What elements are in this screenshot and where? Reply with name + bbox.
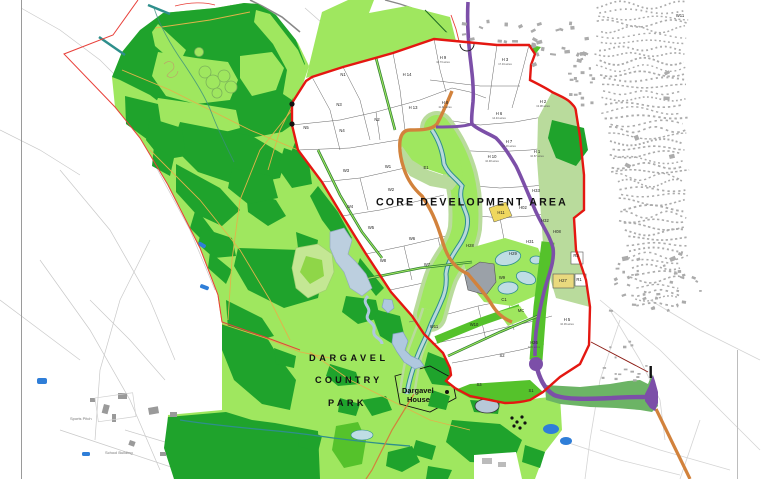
svg-text:14.43 acres: 14.43 acres xyxy=(492,116,506,120)
svg-text:10.87 acres: 10.87 acres xyxy=(530,154,544,158)
svg-text:S3: S3 xyxy=(476,382,482,387)
svg-text:W1: W1 xyxy=(385,164,392,169)
svg-text:PARK: PARK xyxy=(328,398,367,408)
svg-text:11.41 acres: 11.41 acres xyxy=(438,105,452,109)
svg-text:N5: N5 xyxy=(303,125,309,130)
svg-text:H27: H27 xyxy=(559,278,567,283)
svg-text:H 2: H 2 xyxy=(540,99,547,104)
svg-text:H31: H31 xyxy=(526,239,534,244)
svg-text:W2: W2 xyxy=(388,187,395,192)
svg-text:N3: N3 xyxy=(336,102,342,107)
svg-text:10.39 acres: 10.39 acres xyxy=(560,322,574,326)
svg-text:H 7: H 7 xyxy=(506,139,513,144)
svg-text:10.73 acres: 10.73 acres xyxy=(436,60,450,64)
svg-text:S2: S2 xyxy=(499,353,505,358)
svg-text:W8: W8 xyxy=(380,258,387,263)
svg-text:N1: N1 xyxy=(340,72,346,77)
svg-text:H 14: H 14 xyxy=(403,72,413,77)
svg-text:CORE DEVELOPMENT AREA: CORE DEVELOPMENT AREA xyxy=(376,197,568,209)
svg-text:16.16 acres: 16.16 acres xyxy=(502,144,516,148)
svg-text:W11: W11 xyxy=(676,13,685,18)
svg-text:W3: W3 xyxy=(343,168,350,173)
svg-text:MC: MC xyxy=(518,308,525,313)
svg-text:W9: W9 xyxy=(499,275,506,280)
svg-text:H32: H32 xyxy=(541,218,549,223)
svg-text:W5: W5 xyxy=(368,225,375,230)
svg-text:W4: W4 xyxy=(347,204,354,209)
svg-text:W6: W6 xyxy=(409,236,416,241)
svg-text:Sports Pitch: Sports Pitch xyxy=(70,416,92,421)
svg-text:H 9: H 9 xyxy=(440,55,447,60)
svg-text:W10: W10 xyxy=(470,322,479,327)
svg-text:W11: W11 xyxy=(430,324,439,329)
svg-text:R1: R1 xyxy=(576,277,582,282)
svg-text:S1: S1 xyxy=(528,388,534,393)
svg-text:13.08 acres: 13.08 acres xyxy=(536,104,550,108)
svg-text:School Building: School Building xyxy=(105,450,133,455)
svg-text:H 3: H 3 xyxy=(502,57,509,62)
svg-text:H 10: H 10 xyxy=(488,154,498,159)
svg-text:H 1: H 1 xyxy=(534,149,541,154)
svg-text:Dargavel: Dargavel xyxy=(402,386,434,395)
svg-text:N4: N4 xyxy=(339,128,345,133)
svg-text:H26: H26 xyxy=(530,340,538,345)
svg-text:C1: C1 xyxy=(501,297,507,302)
svg-text:H02: H02 xyxy=(519,205,527,210)
svg-text:House: House xyxy=(407,395,430,404)
svg-text:DARGAVEL: DARGAVEL xyxy=(309,353,389,363)
svg-text:R2: R2 xyxy=(573,253,579,258)
svg-text:E1: E1 xyxy=(423,165,429,170)
svg-text:H 8: H 8 xyxy=(442,100,449,105)
svg-text:N2: N2 xyxy=(374,117,380,122)
svg-text:H33: H33 xyxy=(532,188,540,193)
svg-text:H 5: H 5 xyxy=(564,317,571,322)
svg-text:H11: H11 xyxy=(497,210,505,215)
svg-text:W7: W7 xyxy=(424,262,431,267)
svg-text:H29: H29 xyxy=(509,251,517,256)
svg-text:10.48 acres: 10.48 acres xyxy=(485,159,499,163)
svg-text:H28: H28 xyxy=(466,243,474,248)
svg-text:17.34 acres: 17.34 acres xyxy=(498,62,512,66)
svg-text:H08: H08 xyxy=(553,229,561,234)
svg-text:H 6: H 6 xyxy=(496,111,503,116)
svg-text:H 13: H 13 xyxy=(409,105,419,110)
svg-text:9.09 acres: 9.09 acres xyxy=(528,345,541,349)
svg-text:COUNTRY: COUNTRY xyxy=(315,375,383,385)
